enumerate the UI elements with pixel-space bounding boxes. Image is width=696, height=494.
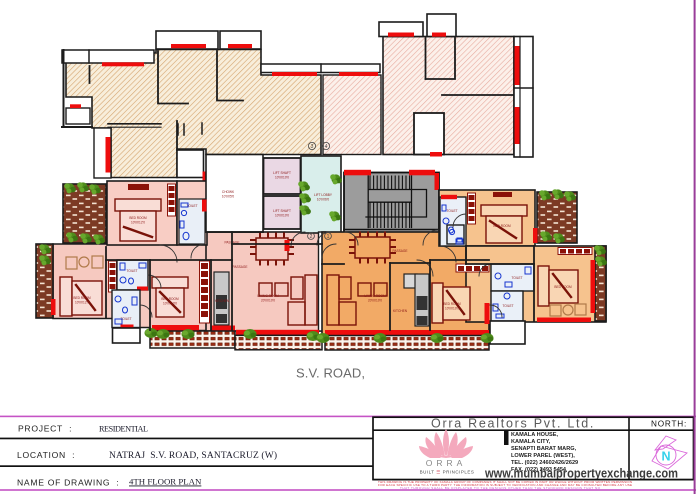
svg-text:20'0X10'0: 20'0X10'0: [368, 299, 382, 303]
svg-text:KITCHEN: KITCHEN: [215, 299, 230, 303]
svg-text:LOWER PAREL (WEST),: LOWER PAREL (WEST),: [511, 453, 575, 459]
svg-text:BED ROOM: BED ROOM: [493, 224, 511, 228]
svg-text:LIFT SHAFT: LIFT SHAFT: [273, 171, 291, 175]
svg-text:BED ROOM: BED ROOM: [554, 285, 572, 289]
svg-text:10'0X10'0: 10'0X10'0: [163, 302, 177, 306]
svg-text:10'0X10'0: 10'0X10'0: [275, 214, 289, 218]
svg-text:2: 2: [310, 234, 313, 240]
svg-text:NORTH:: NORTH:: [651, 420, 687, 429]
svg-text:RESIDENTIAL: RESIDENTIAL: [99, 425, 148, 434]
svg-text:N: N: [661, 450, 670, 464]
svg-text:10'0X12'0: 10'0X12'0: [75, 301, 89, 305]
svg-text:PASSAGE: PASSAGE: [233, 265, 248, 269]
svg-text:THAT THROUGH SHALL BE DISPLAYE: THAT THROUGH SHALL BE DISPLAYED TO THE D…: [400, 486, 601, 490]
svg-text:NATRAJ S.V. ROAD, SANTACRUZ (: NATRAJ S.V. ROAD, SANTACRUZ (W): [109, 450, 277, 461]
svg-text:BUILT ☰ PRINCIPLES: BUILT ☰ PRINCIPLES: [420, 470, 475, 475]
svg-text:BED ROOM: BED ROOM: [161, 297, 179, 301]
svg-text:KAMALA HOUSE,: KAMALA HOUSE,: [511, 432, 558, 438]
svg-text:4: 4: [325, 144, 328, 150]
svg-text:TOILET: TOILET: [511, 276, 522, 280]
svg-text:KAMALA CITY,: KAMALA CITY,: [511, 439, 551, 445]
svg-text:LIVING ROOM: LIVING ROOM: [364, 294, 386, 298]
svg-text:LIFT SHAFT: LIFT SHAFT: [273, 209, 291, 213]
svg-text:TOILET: TOILET: [126, 269, 137, 273]
svg-text:BED ROOM: BED ROOM: [443, 302, 461, 306]
svg-text:20'0X10'0: 20'0X10'0: [261, 299, 275, 303]
svg-text:TOILET: TOILET: [502, 304, 513, 308]
svg-text:10'0X12'0: 10'0X12'0: [131, 221, 145, 225]
svg-text:S.V. ROAD,: S.V. ROAD,: [296, 366, 367, 381]
svg-text:3: 3: [311, 144, 314, 150]
svg-text:TOILET: TOILET: [446, 209, 457, 213]
svg-text:SENAPTI BARAT MARG,: SENAPTI BARAT MARG,: [511, 446, 577, 452]
svg-text:PROJECT :: PROJECT :: [18, 424, 72, 434]
svg-text:LIVING ROOM: LIVING ROOM: [257, 294, 279, 298]
svg-text:LIFT LOBBY: LIFT LOBBY: [314, 193, 333, 197]
svg-text:www.mumbaipropertyexchange.com: www.mumbaipropertyexchange.com: [484, 466, 678, 481]
svg-text:4TH FLOOR PLAN: 4TH FLOOR PLAN: [129, 477, 202, 487]
svg-text:LOCATION :: LOCATION :: [17, 450, 75, 460]
svg-text:CHOWK: CHOWK: [222, 190, 235, 194]
svg-text:10'0X5'0: 10'0X5'0: [222, 195, 234, 199]
svg-text:BED ROOM: BED ROOM: [73, 296, 91, 300]
svg-text:10'0X10'0: 10'0X10'0: [445, 307, 459, 311]
svg-text:Orra Realtors Pvt. Ltd.: Orra Realtors Pvt. Ltd.: [431, 417, 595, 431]
svg-text:KITCHEN: KITCHEN: [393, 309, 408, 313]
svg-text:1: 1: [327, 234, 330, 240]
svg-text:BED ROOM: BED ROOM: [129, 216, 147, 220]
svg-text:10'0X6'0: 10'0X6'0: [317, 198, 329, 202]
svg-text:10'0X10'0: 10'0X10'0: [275, 176, 289, 180]
svg-text:ORRA: ORRA: [426, 458, 467, 468]
svg-text:PASSAGE: PASSAGE: [393, 249, 408, 253]
svg-text:NAME OF DRAWING :: NAME OF DRAWING :: [17, 478, 120, 488]
